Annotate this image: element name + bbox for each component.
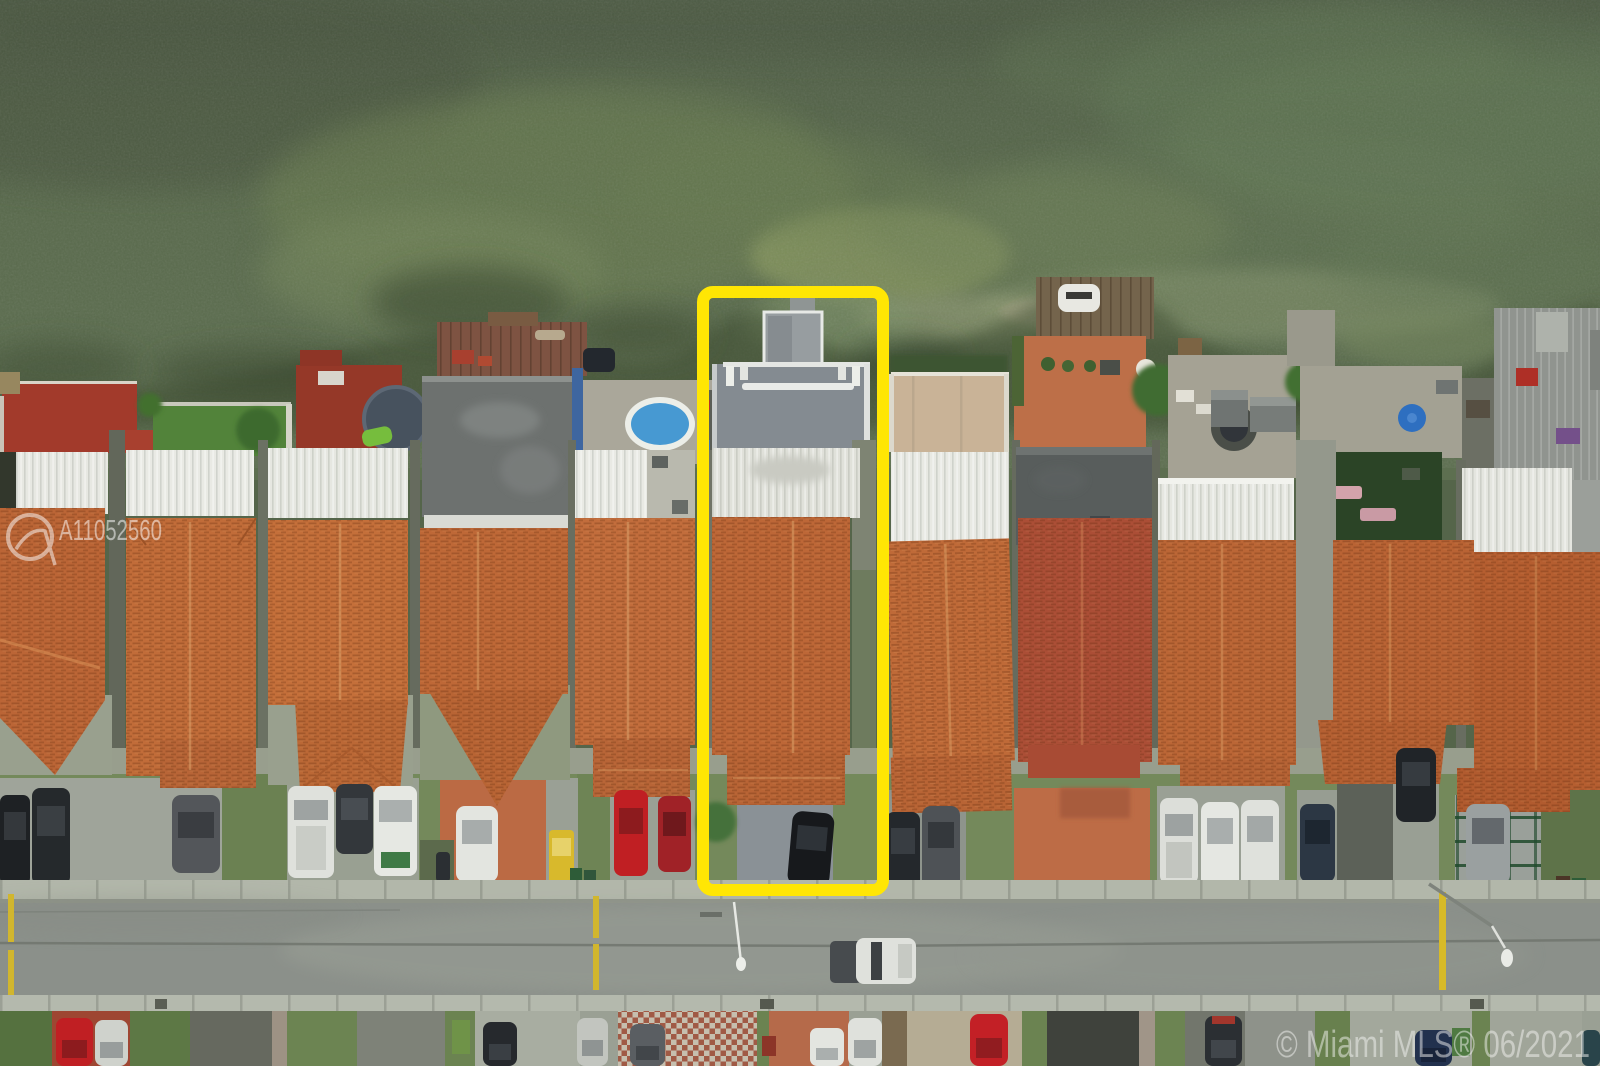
svg-text:© Miami MLS® 06/2021: © Miami MLS® 06/2021: [1276, 1024, 1590, 1066]
svg-text:A11052560: A11052560: [59, 515, 162, 547]
